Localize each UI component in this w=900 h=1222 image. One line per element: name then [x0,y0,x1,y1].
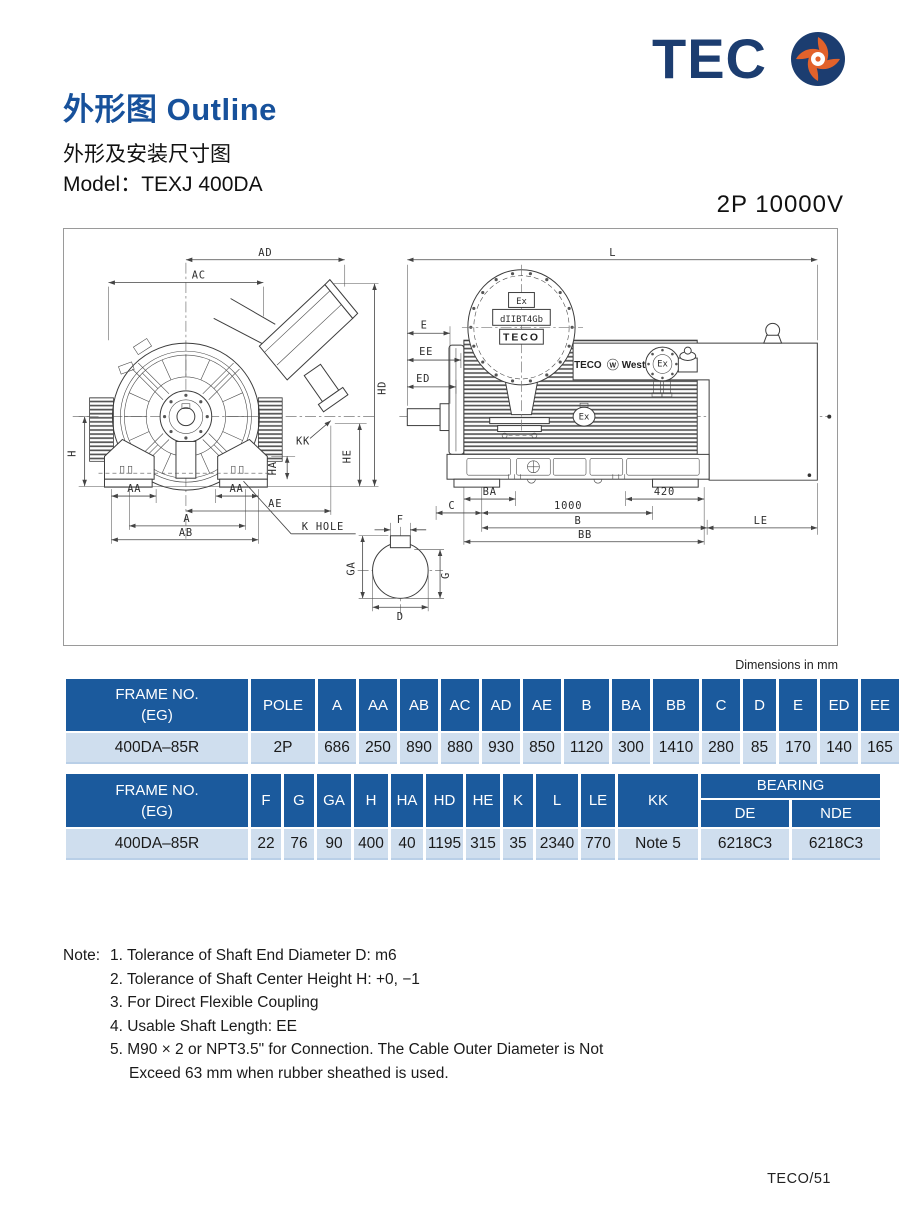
outline-drawing: AD AC HD H HE HA AA AA AE A AB KK [63,228,838,646]
t2-header-col: KK [618,774,698,827]
t1-header-col: E [779,679,817,731]
t1-cell: 930 [482,733,520,764]
t1-cell: 880 [441,733,479,764]
t1-header-col: BB [653,679,699,731]
t2-cell: 35 [503,829,533,860]
page-title-zh: 外形图 [63,92,158,127]
t2-header-col: L [536,774,578,827]
svg-text:AA: AA [127,483,141,495]
t2-cell: 76 [284,829,314,860]
svg-text:W: W [610,362,617,369]
svg-text:KK: KK [296,435,310,447]
t2-cell: 1195 [426,829,463,860]
datasheet-page: { "logo": { "text": "TEC" }, "header": {… [0,0,900,1222]
svg-text:AA: AA [229,483,243,495]
svg-text:HA: HA [267,461,279,475]
t2-header-frame: FRAME NO. (EG) [66,774,248,827]
t2-frame-value: 400DA–85R [66,829,248,860]
t2-header-nde: NDE [792,800,880,827]
svg-text:ED: ED [416,373,430,385]
t1-header-col: BA [612,679,650,731]
t1-cell: 280 [702,733,740,764]
terminal-box-front [214,280,358,412]
dimension-table-2: FRAME NO. (EG) F G GA H HA HD HE K L LE … [63,772,883,862]
svg-text:B: B [575,515,582,527]
svg-text:420: 420 [654,486,675,498]
t1-cell: 165 [861,733,899,764]
logo-swirl-icon [791,32,845,86]
t2-header-col: HE [466,774,500,827]
table2-header-row-1: FRAME NO. (EG) F G GA H HA HD HE K L LE … [66,774,880,798]
t1-cell: 850 [523,733,561,764]
notes-list: 1. Tolerance of Shaft End Diameter D: m6… [110,944,603,1085]
front-view: AD AC HD H HE HA AA AA AE A AB KK [67,247,389,544]
t1-header-frame: FRAME NO. (EG) [66,679,248,731]
t2-cell: 315 [466,829,500,860]
t1-header-col: ED [820,679,858,731]
t2-cell: Note 5 [618,829,698,860]
dimensions-note: Dimensions in mm [735,658,838,672]
svg-text:GA: GA [346,561,358,575]
t1-header-col: B [564,679,609,731]
model-line: Model：TEXJ 400DA [63,168,263,198]
t1-cell: 1120 [564,733,609,764]
t2-cell: 40 [391,829,423,860]
note-item: 3. For Direct Flexible Coupling [110,991,603,1015]
page-title: 外形图 Outline [63,84,277,129]
svg-text:BA: BA [483,486,497,498]
t1-cell: 140 [820,733,858,764]
svg-text:H: H [67,450,79,457]
rating-line: 2P 10000V [717,191,844,219]
t2-cell: 2340 [536,829,578,860]
t1-header-col: AA [359,679,397,731]
t2-header-bearing: BEARING [701,774,880,798]
svg-text:D: D [397,611,404,623]
t2-header-de: DE [701,800,789,827]
table1-data-row: 400DA–85R 2P 686 250 890 880 930 850 112… [66,733,899,764]
svg-text:BB: BB [578,529,592,541]
t1-header-col: C [702,679,740,731]
logo-text: TEC [652,28,767,88]
t1-header-col: D [743,679,776,731]
svg-text:F: F [397,514,404,526]
t2-cell: 400 [354,829,388,860]
t2-header-col: LE [581,774,615,827]
table2-data-row: 400DA–85R 22 76 90 400 40 1195 315 35 23… [66,829,880,860]
teco-logo: TEC [652,28,848,88]
t2-header-col: F [251,774,281,827]
t2-bearing-de: 6218C3 [701,829,789,860]
ex-plate-text: Ex [516,297,527,307]
t2-header-col: GA [317,774,351,827]
outline-drawing-svg: AD AC HD H HE HA AA AA AE A AB KK [64,229,835,644]
t2-header-col: K [503,774,533,827]
t1-cell: 300 [612,733,650,764]
svg-text:AD: AD [258,247,272,259]
t1-pole-value: 2P [251,733,315,764]
ex-code-text: dIIBT4Gb [500,315,543,325]
t1-header-col: AD [482,679,520,731]
t1-cell: 686 [318,733,356,764]
note-item: 5. M90 × 2 or NPT3.5" for Connection. Th… [110,1038,603,1085]
svg-text:Ex: Ex [579,413,590,423]
t1-header-col: A [318,679,356,731]
note-item: 2. Tolerance of Shaft Center Height H: +… [110,968,603,992]
t1-cell: 250 [359,733,397,764]
t1-header-col: EE [861,679,899,731]
dimension-table-1: FRAME NO. (EG) POLE A AA AB AC AD AE B B… [63,677,900,766]
t1-cell: 170 [779,733,817,764]
notes-label: Note: [63,944,110,1085]
t2-cell: 22 [251,829,281,860]
table1-header-row: FRAME NO. (EG) POLE A AA AB AC AD AE B B… [66,679,899,731]
t1-cell: 890 [400,733,438,764]
t1-header-col: AC [441,679,479,731]
t2-bearing-nde: 6218C3 [792,829,880,860]
t1-header-col: AE [523,679,561,731]
svg-text:EE: EE [419,346,433,358]
teco-plate-text: TECO [503,333,540,344]
svg-text:TECO: TECO [574,360,602,371]
t2-header-col: G [284,774,314,827]
t1-cell: 85 [743,733,776,764]
svg-text:L: L [609,247,616,259]
note-item: 4. Usable Shaft Length: EE [110,1015,603,1039]
t1-header-pole: POLE [251,679,315,731]
page-number: TECO/51 [767,1171,831,1187]
t1-header-col: AB [400,679,438,731]
notes-block: Note: 1. Tolerance of Shaft End Diameter… [63,944,663,1085]
svg-text:AE: AE [268,498,282,510]
page-title-en: Outline [167,92,277,127]
svg-text:HD: HD [376,381,388,395]
t2-header-col: HA [391,774,423,827]
svg-text:E: E [421,319,428,331]
svg-text:G: G [440,572,452,579]
shaft-section-view: F GA G D [346,514,452,623]
t2-header-col: H [354,774,388,827]
svg-text:A: A [183,513,190,525]
svg-text:AC: AC [192,270,206,282]
svg-text:K HOLE: K HOLE [302,521,344,533]
svg-text:Ex: Ex [657,360,668,370]
t2-header-col: HD [426,774,463,827]
t1-cell: 1410 [653,733,699,764]
side-view: Ex dIIBT4Gb TECO TECO W Westinghouse Ex [399,247,831,545]
svg-text:1000: 1000 [554,500,582,512]
t2-cell: 90 [317,829,351,860]
note-item: 1. Tolerance of Shaft End Diameter D: m6 [110,944,603,968]
t2-cell: 770 [581,829,615,860]
svg-text:C: C [448,500,455,512]
t1-frame-value: 400DA–85R [66,733,248,764]
svg-text:HE: HE [342,449,354,463]
eyebolt [764,323,782,343]
page-subtitle: 外形及安装尺寸图 [63,138,231,168]
svg-text:LE: LE [754,515,768,527]
svg-text:AB: AB [179,527,193,539]
